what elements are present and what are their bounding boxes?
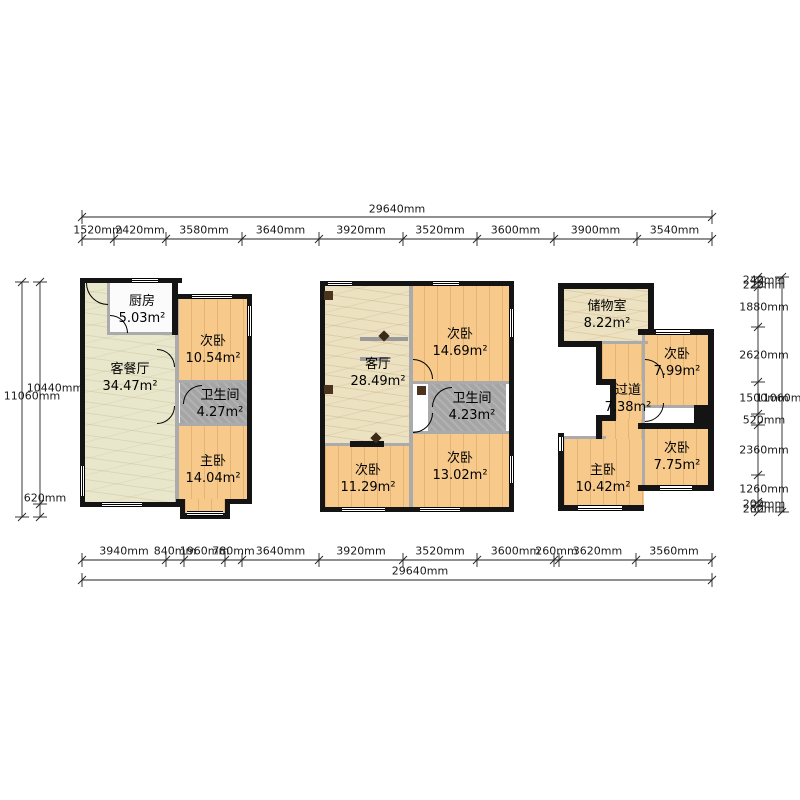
room-label: 厨房 5.03m² [112, 294, 172, 328]
dimension-label: 3940mm [99, 545, 148, 558]
dimension-label: 2620mm [739, 348, 788, 361]
room-name: 储物室 [568, 299, 646, 316]
room-name: 次卧 [328, 463, 408, 480]
dimension-label: 11060mm [4, 390, 60, 403]
dimension-label: 1260mm [739, 482, 788, 495]
room-name: 次卧 [646, 347, 708, 364]
room-name: 过道 [596, 383, 660, 400]
dimension-label: 3540mm [650, 224, 699, 237]
room-label: 次卧 13.02m² [415, 451, 505, 485]
floorplan-canvas: 厨房 5.03m² 客餐厅 34.47m² 次卧 10.54m² 卫生间 4.2… [0, 0, 800, 800]
room-area: 4.23m² [430, 408, 514, 425]
dimension-label: 3640mm [256, 545, 305, 558]
room-name: 客餐厅 [88, 362, 172, 379]
room-label: 主卧 14.04m² [180, 454, 246, 488]
dimension-label: 780mm [212, 545, 254, 558]
dimension-label: 11060mm [756, 392, 800, 405]
room-name: 卫生间 [184, 388, 256, 405]
room-area: 8.22m² [568, 316, 646, 333]
dimension-label: 260mm [535, 545, 577, 558]
dimension-label: 620mm [24, 492, 66, 505]
dimension-label: 3600mm [491, 545, 540, 558]
room-label: 客餐厅 34.47m² [88, 362, 172, 396]
room-area: 4.27m² [184, 405, 256, 422]
dimension-label: 3560mm [649, 545, 698, 558]
room-name: 次卧 [415, 451, 505, 468]
room-name: 客厅 [338, 357, 418, 374]
dimension-label: 3620mm [573, 545, 622, 558]
room-area: 14.69m² [415, 344, 505, 361]
room-label: 主卧 10.42m² [566, 463, 640, 497]
dimension-label: 3640mm [256, 224, 305, 237]
dimension-label: 3580mm [179, 224, 228, 237]
dimension-label: 260mm [743, 503, 785, 516]
dimension-label: 3920mm [336, 545, 385, 558]
room-label: 客厅 28.49m² [338, 357, 418, 391]
room-area: 7.38m² [596, 400, 660, 417]
room-label: 卫生间 4.27m² [184, 388, 256, 422]
room-name: 主卧 [566, 463, 640, 480]
dimension-label: 220mm [743, 278, 785, 291]
dimension-label: 29640mm [392, 565, 448, 578]
room-area: 10.54m² [180, 351, 246, 368]
dimension-label: 3520mm [415, 224, 464, 237]
room-area: 11.29m² [328, 480, 408, 497]
room-name: 次卧 [415, 327, 505, 344]
dimension-label: 2360mm [739, 444, 788, 457]
dimension-label: 3520mm [415, 545, 464, 558]
dimension-lines [0, 0, 800, 800]
room-name: 厨房 [112, 294, 172, 311]
room-area: 28.49m² [338, 374, 418, 391]
dimension-label: 3920mm [336, 224, 385, 237]
dimension-label: 29640mm [369, 203, 425, 216]
room-name: 主卧 [180, 454, 246, 471]
room-name: 次卧 [180, 334, 246, 351]
room-label: 次卧 10.54m² [180, 334, 246, 368]
room-area: 7.99m² [646, 364, 708, 381]
room-name: 卫生间 [430, 391, 514, 408]
room-area: 14.04m² [180, 471, 246, 488]
dimension-label: 3900mm [571, 224, 620, 237]
room-label: 卫生间 4.23m² [430, 391, 514, 425]
room-area: 10.42m² [566, 480, 640, 497]
room-area: 34.47m² [88, 379, 172, 396]
room-area: 5.03m² [112, 311, 172, 328]
room-label: 储物室 8.22m² [568, 299, 646, 333]
room-area: 7.75m² [646, 458, 708, 475]
room-label: 次卧 7.75m² [646, 441, 708, 475]
dimension-label: 520mm [743, 413, 785, 426]
dimension-label: 3600mm [491, 224, 540, 237]
room-label: 次卧 11.29m² [328, 463, 408, 497]
room-name: 次卧 [646, 441, 708, 458]
room-label: 次卧 14.69m² [415, 327, 505, 361]
room-label: 过道 7.38m² [596, 383, 660, 417]
dimension-label: 2420mm [115, 224, 164, 237]
room-area: 13.02m² [415, 468, 505, 485]
dimension-label: 1880mm [739, 301, 788, 314]
room-label: 次卧 7.99m² [646, 347, 708, 381]
